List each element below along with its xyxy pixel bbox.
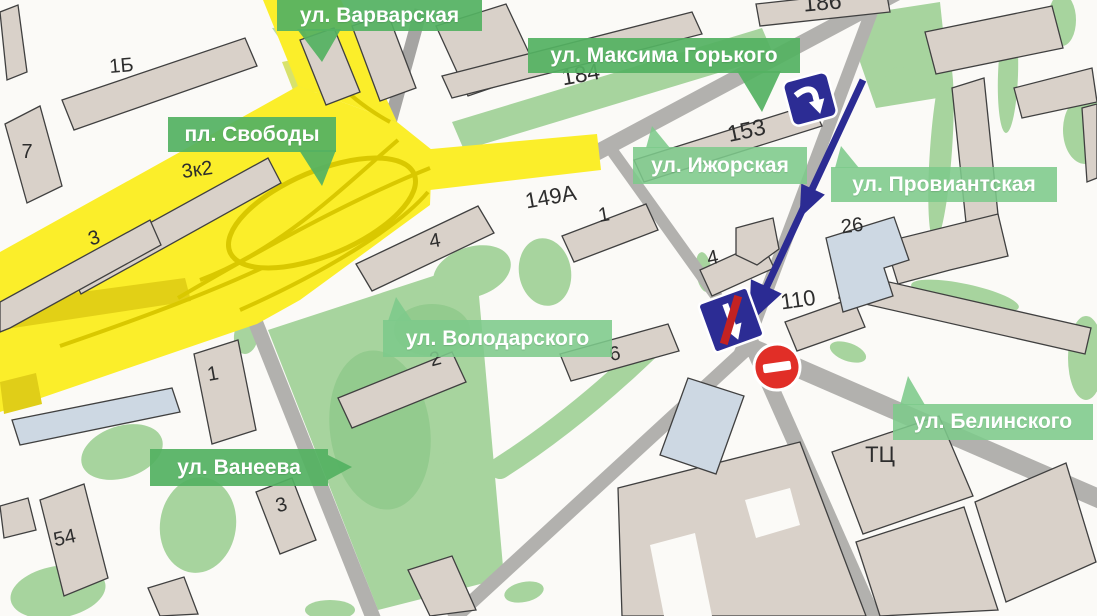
building	[0, 498, 36, 538]
building-number: 149А	[523, 180, 578, 214]
street-label-pointer-proviantskaya	[835, 146, 859, 168]
building	[5, 106, 62, 203]
street-label-text: ул. Ижорская	[651, 154, 789, 178]
building-number: 1	[597, 203, 612, 227]
building	[1082, 104, 1097, 182]
building-number: 26	[840, 214, 865, 239]
city-map[interactable]: 1Б73к23186184153149А14426110261354ТЦ ул.…	[0, 0, 1097, 616]
building-number: 1Б	[108, 54, 134, 78]
building-number: ТЦ	[865, 442, 895, 467]
building	[562, 204, 658, 262]
street-label-text: пл. Свободы	[184, 123, 319, 147]
street-label-text: ул. Максима Горького	[550, 44, 777, 68]
map-canvas: 1Б73к23186184153149А14426110261354ТЦ	[0, 0, 1097, 616]
street-label-text: ул. Провиантская	[852, 173, 1035, 197]
green-blob	[502, 578, 545, 606]
street-label-pointer-belinskogo	[900, 376, 925, 405]
building-number: 7	[21, 141, 32, 163]
building-number: 110	[779, 285, 817, 315]
street-label-volodarskogo: ул. Володарского	[383, 320, 612, 357]
building	[256, 478, 316, 554]
building	[618, 442, 866, 616]
street-label-text: ул. Варварская	[300, 4, 459, 28]
street-label-pointer-gorkogo	[737, 71, 781, 112]
street-label-text: ул. Белинского	[914, 410, 1072, 434]
street-label-text: ул. Ванеева	[177, 456, 301, 480]
building	[194, 340, 256, 444]
one-way-start-sign	[782, 71, 838, 127]
green-blob	[885, 67, 915, 93]
building	[925, 6, 1063, 74]
street-label-varvarskaya: ул. Варварская	[277, 0, 482, 31]
street-label-izhorskaya: ул. Ижорская	[633, 147, 807, 184]
street-label-proviantskaya: ул. Провиантская	[831, 167, 1057, 202]
green-blob	[305, 600, 355, 616]
street-label-svobody: пл. Свободы	[168, 117, 336, 152]
green-blob	[827, 337, 869, 367]
building-number: 54	[52, 525, 78, 551]
building-number: 3к2	[180, 157, 214, 183]
street-label-belinskogo: ул. Белинского	[893, 404, 1093, 440]
building	[148, 577, 198, 616]
green-blob	[154, 472, 243, 578]
street-label-text: ул. Володарского	[406, 327, 589, 351]
building	[0, 5, 27, 80]
street-label-vaneeva: ул. Ванеева	[150, 449, 328, 486]
street-label-gorkogo: ул. Максима Горького	[528, 38, 800, 73]
